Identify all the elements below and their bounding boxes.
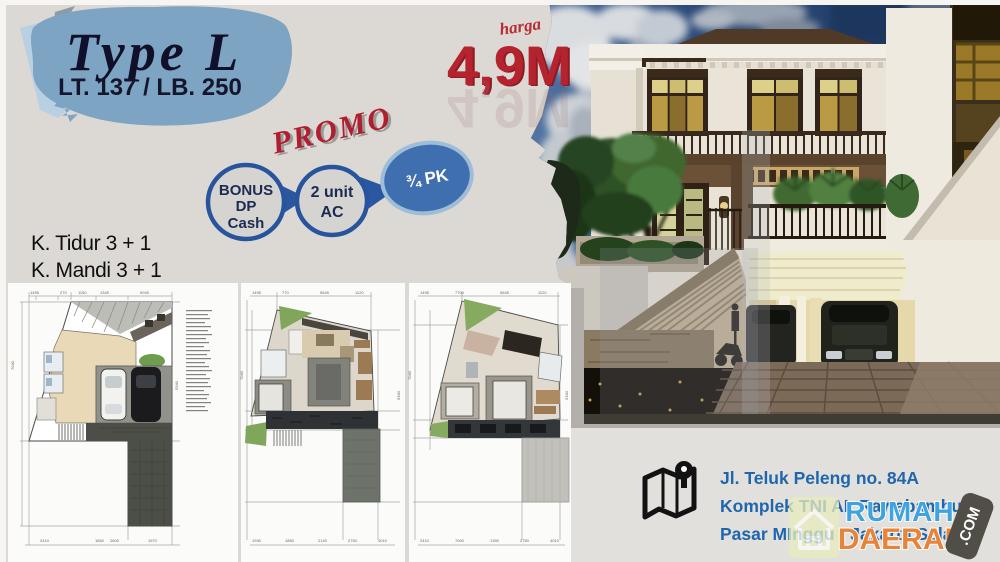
svg-text:AC: AC <box>320 204 344 221</box>
svg-text:4010: 4010 <box>550 538 560 543</box>
svg-text:1350: 1350 <box>490 538 500 543</box>
svg-text:5340: 5340 <box>564 390 569 400</box>
svg-text:DAERAH: DAERAH <box>838 523 966 556</box>
svg-text:1345: 1345 <box>100 290 110 295</box>
svg-text:LT. 137 / LB. 250: LT. 137 / LB. 250 <box>58 74 242 101</box>
svg-text:9045: 9045 <box>140 290 150 295</box>
svg-text:2410: 2410 <box>40 538 50 543</box>
svg-text:1570: 1570 <box>148 538 158 543</box>
svg-text:1495: 1495 <box>252 290 262 295</box>
svg-text:7000: 7000 <box>455 538 465 543</box>
svg-text:K. Mandi 3 + 1: K. Mandi 3 + 1 <box>31 259 161 282</box>
svg-text:1850: 1850 <box>285 538 295 543</box>
svg-text:Type L: Type L <box>66 22 242 82</box>
svg-text:7700: 7700 <box>455 290 465 295</box>
svg-text:Jl. Teluk Peleng no. 84A: Jl. Teluk Peleng no. 84A <box>720 468 919 488</box>
svg-text:DP: DP <box>236 198 257 215</box>
svg-text:5340: 5340 <box>396 390 401 400</box>
svg-text:4,9M: 4,9M <box>447 77 572 140</box>
svg-text:1120: 1120 <box>355 290 364 295</box>
svg-text:2600: 2600 <box>110 538 120 543</box>
svg-text:5645: 5645 <box>500 290 510 295</box>
svg-text:2410: 2410 <box>420 538 430 543</box>
svg-text:K. Tidur 3 + 1: K. Tidur 3 + 1 <box>31 232 151 255</box>
svg-text:1495: 1495 <box>30 290 40 295</box>
svg-text:2750: 2750 <box>348 538 358 543</box>
svg-text:770: 770 <box>282 290 289 295</box>
svg-text:Cash: Cash <box>228 215 265 232</box>
svg-text:7040: 7040 <box>407 370 412 380</box>
svg-text:BONUS: BONUS <box>219 182 273 199</box>
svg-text:1495: 1495 <box>420 290 430 295</box>
svg-text:1850: 1850 <box>95 538 105 543</box>
svg-text:7040: 7040 <box>239 370 244 380</box>
svg-text:7040: 7040 <box>10 360 15 370</box>
svg-text:2140: 2140 <box>318 538 328 543</box>
svg-text:5340: 5340 <box>174 380 179 390</box>
svg-text:270: 270 <box>60 290 67 295</box>
svg-text:1150: 1150 <box>78 290 87 295</box>
svg-text:2750: 2750 <box>520 538 530 543</box>
svg-text:1120: 1120 <box>538 290 547 295</box>
svg-text:2 unit: 2 unit <box>311 184 354 201</box>
svg-text:1930: 1930 <box>252 538 262 543</box>
svg-text:5645: 5645 <box>320 290 330 295</box>
svg-text:4010: 4010 <box>378 538 388 543</box>
